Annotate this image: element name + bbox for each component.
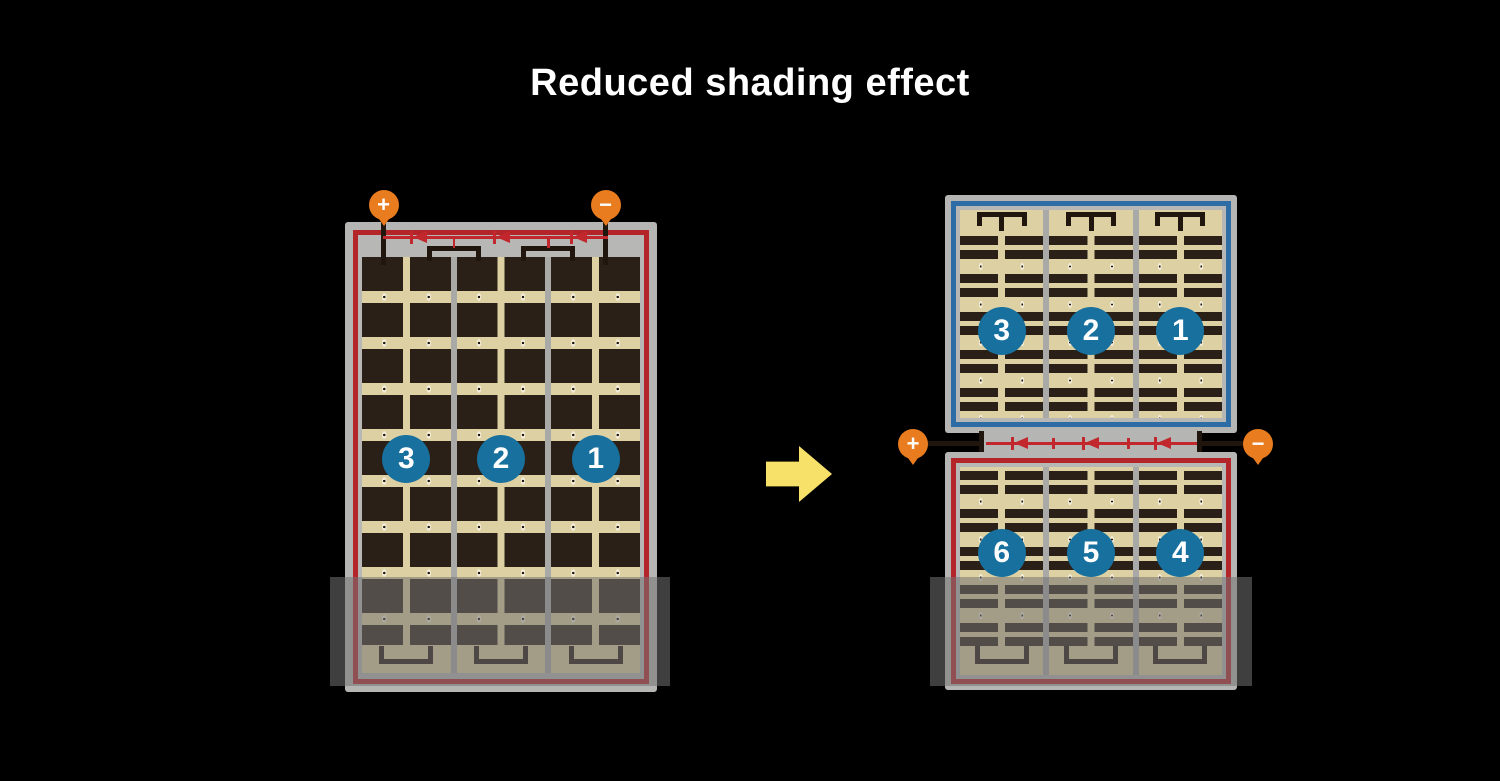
diode-triangle: [1157, 437, 1171, 449]
group-badge-label: 2: [1083, 314, 1100, 348]
bypass-diode-icon: [493, 230, 510, 244]
diode-triangle: [413, 231, 427, 243]
group-badge-label: 3: [398, 442, 415, 476]
group-badge: 3: [382, 435, 430, 483]
group-badge: 3: [978, 307, 1026, 355]
diode-triangle: [496, 231, 510, 243]
group-badge: 2: [1067, 307, 1115, 355]
group-badge: 6: [978, 529, 1026, 577]
diode-wire-tap: [1052, 438, 1055, 449]
diode-wire-tap: [547, 236, 550, 248]
minus-terminal-icon: −: [591, 190, 621, 220]
diode-wire-tap: [1127, 438, 1130, 449]
diode-triangle: [573, 231, 587, 243]
minus-terminal-icon: −: [1243, 429, 1273, 459]
plus-terminal-icon: +: [898, 429, 928, 459]
group-badge: 1: [572, 435, 620, 483]
plus-terminal-label: +: [907, 433, 920, 455]
group-badge-label: 2: [493, 442, 510, 476]
bypass-diode-icon: [410, 230, 427, 244]
positive-junction-wire: [927, 441, 981, 446]
bridge-stem-busbar: [1089, 217, 1094, 231]
bridge-stem-busbar: [1178, 217, 1183, 231]
diode-wire-tap: [453, 236, 456, 248]
diode-triangle: [1085, 437, 1099, 449]
diode-triangle: [1014, 437, 1028, 449]
minus-terminal-label: −: [1252, 433, 1265, 455]
bypass-diode-icon: [570, 230, 587, 244]
group-badge-label: 1: [587, 442, 604, 476]
bypass-diode-icon: [1011, 436, 1028, 450]
bypass-diode-icon: [1154, 436, 1171, 450]
shading-overlay: [930, 577, 1252, 686]
diagram-title: Reduced shading effect: [0, 62, 1500, 105]
minus-terminal-label: −: [599, 194, 612, 216]
string-bridge-busbar: [521, 246, 575, 261]
transition-arrow-icon: [766, 446, 832, 502]
group-badge-label: 1: [1172, 314, 1189, 348]
shading-overlay: [330, 577, 670, 686]
group-badge-label: 5: [1083, 536, 1100, 570]
group-badge: 4: [1156, 529, 1204, 577]
group-badge-label: 3: [993, 314, 1010, 348]
plus-terminal-label: +: [377, 194, 390, 216]
group-badge-label: 6: [993, 536, 1010, 570]
group-badge: 1: [1156, 307, 1204, 355]
negative-junction-wire: [1202, 441, 1244, 446]
group-badge: 5: [1067, 529, 1115, 577]
bypass-diode-icon: [1082, 436, 1099, 450]
diagram-canvas: Reduced shading effect + − 3 2 1: [0, 0, 1500, 781]
bridge-stem-busbar: [999, 217, 1004, 231]
plus-terminal-icon: +: [369, 190, 399, 220]
string-bridge-busbar: [427, 246, 481, 261]
group-badge-label: 4: [1172, 536, 1189, 570]
group-badge: 2: [477, 435, 525, 483]
